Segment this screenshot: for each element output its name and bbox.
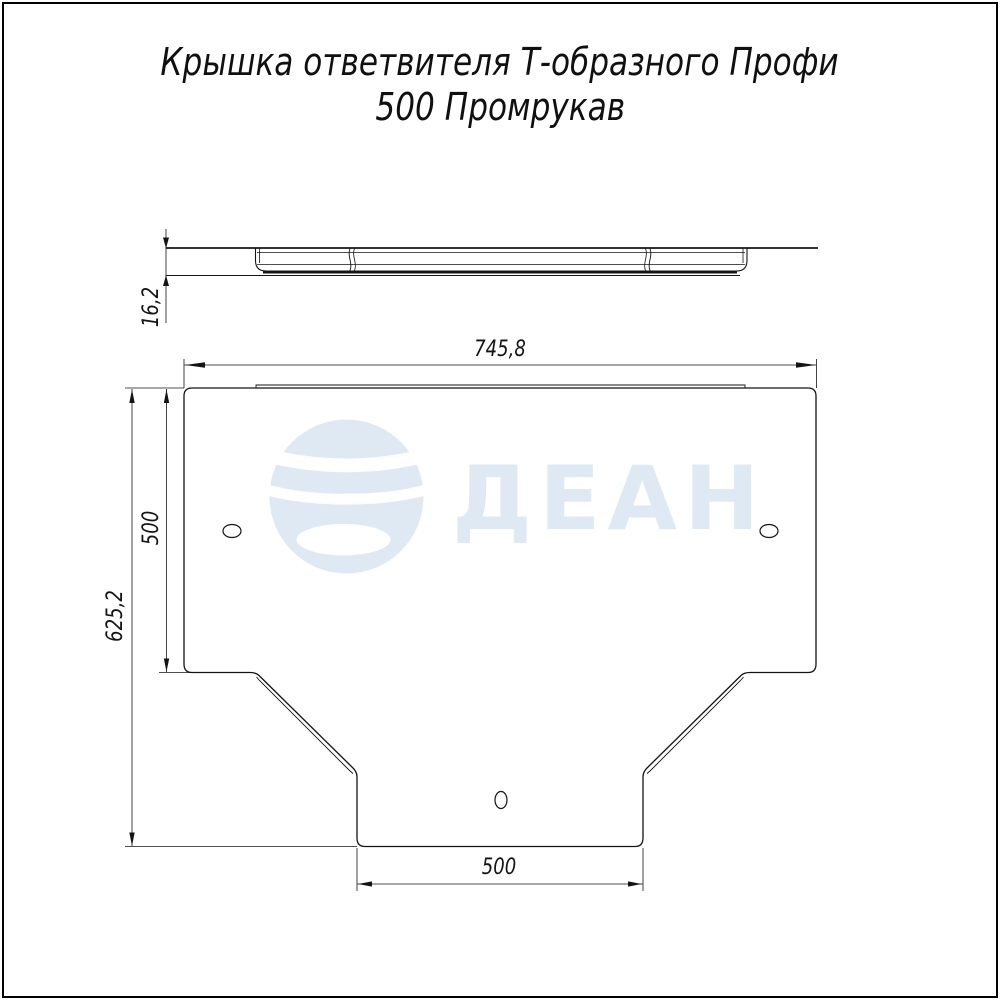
dim-arrow [164, 659, 169, 672]
dim-bottom-width-label: 500 [482, 857, 516, 879]
dim-arrow [628, 881, 642, 886]
plan-view [184, 385, 816, 847]
dim-arrow [129, 833, 134, 846]
dim-width-lines [184, 359, 817, 388]
dim-flange-height-label: 500 [141, 511, 163, 545]
dim-arrow [796, 362, 816, 368]
left-oval-hole [223, 525, 241, 538]
technical-drawing-linework [0, 0, 1000, 1000]
dim-arrow [164, 390, 169, 404]
dim-arrow [163, 238, 169, 249]
left-bend-seam [257, 677, 354, 774]
dim-total-height-label: 625,2 [105, 590, 127, 642]
plan-view-outline [184, 388, 816, 847]
dim-arrow [185, 362, 205, 368]
dim-arrow [163, 275, 169, 286]
right-bend-seam [647, 677, 744, 774]
right-oval-hole [760, 525, 778, 538]
dim-arrow [129, 390, 134, 404]
dim-width-label: 745,8 [474, 339, 526, 361]
dim-arrow [358, 881, 372, 886]
side-view [166, 248, 818, 276]
dim-total-height-lines [125, 389, 357, 847]
bottom-oval-hole [495, 792, 507, 809]
drawing-sheet: ДЕАН Крышка ответвителя Т-образного Проф… [0, 0, 1000, 1000]
dim-thickness-label: 16,2 [141, 287, 163, 327]
